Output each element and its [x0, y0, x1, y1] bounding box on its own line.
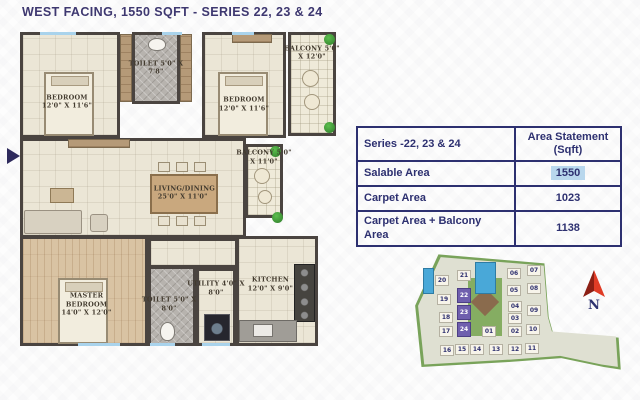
row-value: 1023	[515, 186, 621, 211]
site-block-23: 23	[457, 305, 471, 320]
site-block-06: 06	[507, 268, 521, 279]
site-block-14: 14	[470, 344, 484, 355]
site-block-01: 01	[482, 326, 496, 337]
site-block-17: 17	[439, 326, 453, 337]
washer	[204, 314, 230, 341]
plant	[324, 122, 335, 133]
floor-plan: BEDROOM 12'0" X 11'6"TOILET 5'0" X 7'8"B…	[20, 32, 338, 346]
chair-round	[304, 94, 320, 110]
room-hallway	[148, 238, 238, 268]
row-label: Carpet Area	[357, 186, 515, 211]
site-block-10: 10	[526, 324, 540, 335]
site-block-04: 04	[508, 301, 522, 312]
compass: N	[576, 270, 612, 314]
page-title: WEST FACING, 1550 SQFT - SERIES 22, 23 &…	[22, 5, 323, 20]
chair	[176, 162, 188, 172]
coffee-table	[50, 188, 74, 203]
stove	[294, 264, 315, 322]
north-arrow-icon	[583, 270, 605, 297]
site-block-24: 24	[457, 322, 471, 337]
wardrobe	[68, 139, 130, 148]
compass-north-label: N	[576, 298, 612, 314]
wardrobe	[180, 34, 192, 102]
chair-round	[258, 190, 272, 204]
row-label: Carpet Area + Balcony Area	[357, 211, 515, 245]
sink	[253, 324, 273, 337]
window	[40, 32, 76, 35]
site-block-05: 05	[507, 285, 521, 296]
site-block-21: 21	[457, 270, 471, 281]
window	[162, 32, 182, 35]
chair	[158, 216, 170, 226]
entry-arrow-icon	[7, 148, 20, 164]
wc	[148, 38, 166, 51]
plant	[272, 212, 283, 223]
site-block-11: 11	[525, 343, 539, 354]
bed-master	[58, 278, 108, 344]
site-block-08: 08	[527, 283, 541, 294]
site-block-22: 22	[457, 288, 471, 303]
site-block-07: 07	[527, 265, 541, 276]
site-block-12: 12	[508, 344, 522, 355]
table-row: Carpet Area1023	[357, 186, 621, 211]
site-block-03: 03	[508, 313, 522, 324]
window	[202, 343, 230, 346]
table-row: Carpet Area + Balcony Area1138	[357, 211, 621, 245]
site-block-19: 19	[437, 294, 451, 305]
site-block-20: 20	[435, 275, 449, 286]
chair-round	[254, 168, 270, 184]
site-block-16: 16	[440, 345, 454, 356]
chair	[194, 216, 206, 226]
chair-round	[302, 70, 319, 87]
plant	[324, 34, 335, 45]
wardrobe	[232, 34, 272, 43]
plant	[270, 146, 281, 157]
area-statement-table: Series -22, 23 & 24 Area Statement (Sqft…	[356, 126, 622, 247]
window	[78, 343, 120, 346]
table-row: Salable Area1550	[357, 161, 621, 186]
table-header-series: Series -22, 23 & 24	[357, 127, 515, 161]
wc	[160, 322, 175, 341]
window	[232, 32, 254, 35]
site-block-02: 02	[508, 326, 522, 337]
wardrobe	[120, 34, 132, 102]
site-block-13: 13	[489, 344, 503, 355]
row-value: 1138	[515, 211, 621, 245]
site-block-18: 18	[439, 312, 453, 323]
chair	[158, 162, 170, 172]
site-pool-main	[475, 262, 496, 294]
site-block-09: 09	[527, 305, 541, 316]
armchair	[90, 214, 108, 232]
sofa	[24, 210, 82, 234]
row-value: 1550	[515, 161, 621, 186]
window	[150, 343, 175, 346]
chair	[194, 162, 206, 172]
site-pool-small	[423, 268, 434, 294]
bed	[44, 72, 94, 136]
site-block-15: 15	[455, 344, 469, 355]
table-header-area-statement: Area Statement (Sqft)	[515, 127, 621, 161]
dining-table	[150, 174, 218, 214]
row-label: Salable Area	[357, 161, 515, 186]
chair	[176, 216, 188, 226]
bed	[218, 72, 268, 136]
